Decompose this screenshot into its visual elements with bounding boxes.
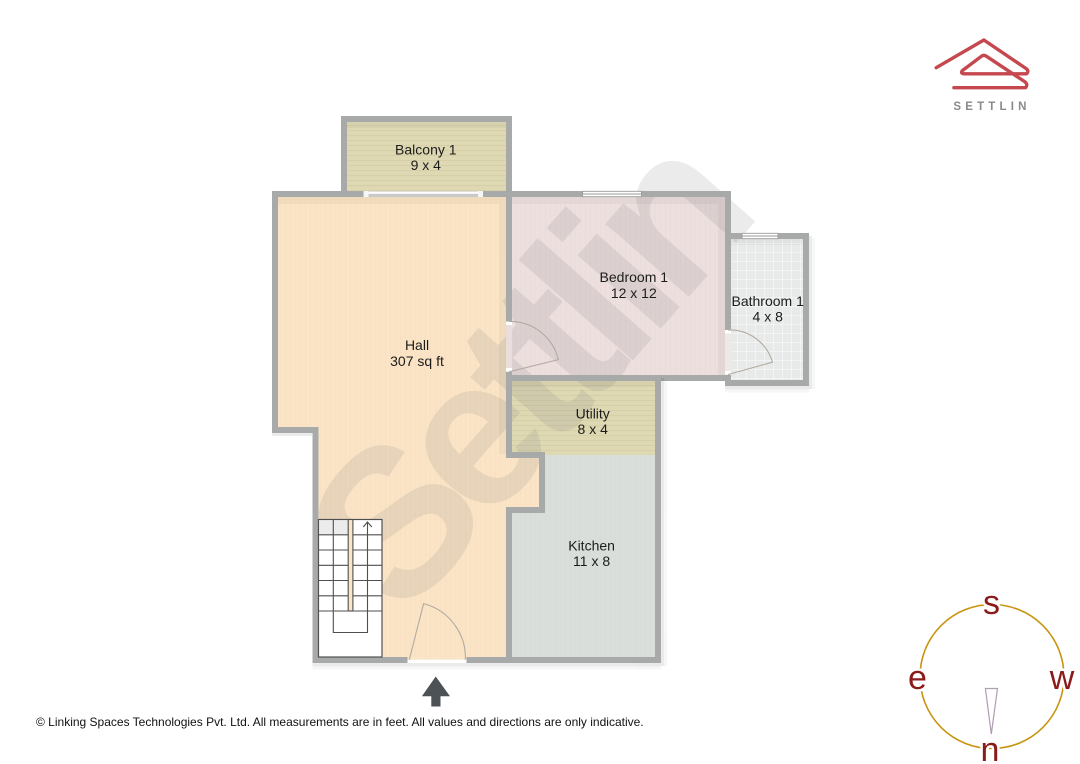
svg-text:Bedroom 1: Bedroom 1: [600, 269, 669, 285]
svg-text:Bathroom 1: Bathroom 1: [732, 293, 805, 309]
svg-text:w: w: [1049, 659, 1075, 697]
svg-text:Kitchen: Kitchen: [568, 538, 615, 554]
svg-text:n: n: [981, 731, 1000, 764]
svg-text:© Linking Spaces Technologies: © Linking Spaces Technologies Pvt. Ltd. …: [36, 715, 644, 729]
svg-text:Utility: Utility: [576, 406, 610, 422]
svg-text:307 sq ft: 307 sq ft: [390, 353, 444, 369]
svg-text:SETTLIN: SETTLIN: [953, 101, 1030, 113]
svg-text:11 x 8: 11 x 8: [573, 553, 610, 569]
svg-text:s: s: [983, 584, 1000, 622]
svg-text:9 x 4: 9 x 4: [411, 157, 442, 173]
svg-text:Hall: Hall: [405, 337, 429, 353]
svg-text:e: e: [908, 659, 927, 697]
svg-text:12 x 12: 12 x 12: [611, 285, 657, 301]
svg-text:8 x 4: 8 x 4: [578, 421, 609, 437]
svg-text:Balcony 1: Balcony 1: [395, 142, 457, 158]
svg-text:4 x 8: 4 x 8: [753, 309, 784, 325]
